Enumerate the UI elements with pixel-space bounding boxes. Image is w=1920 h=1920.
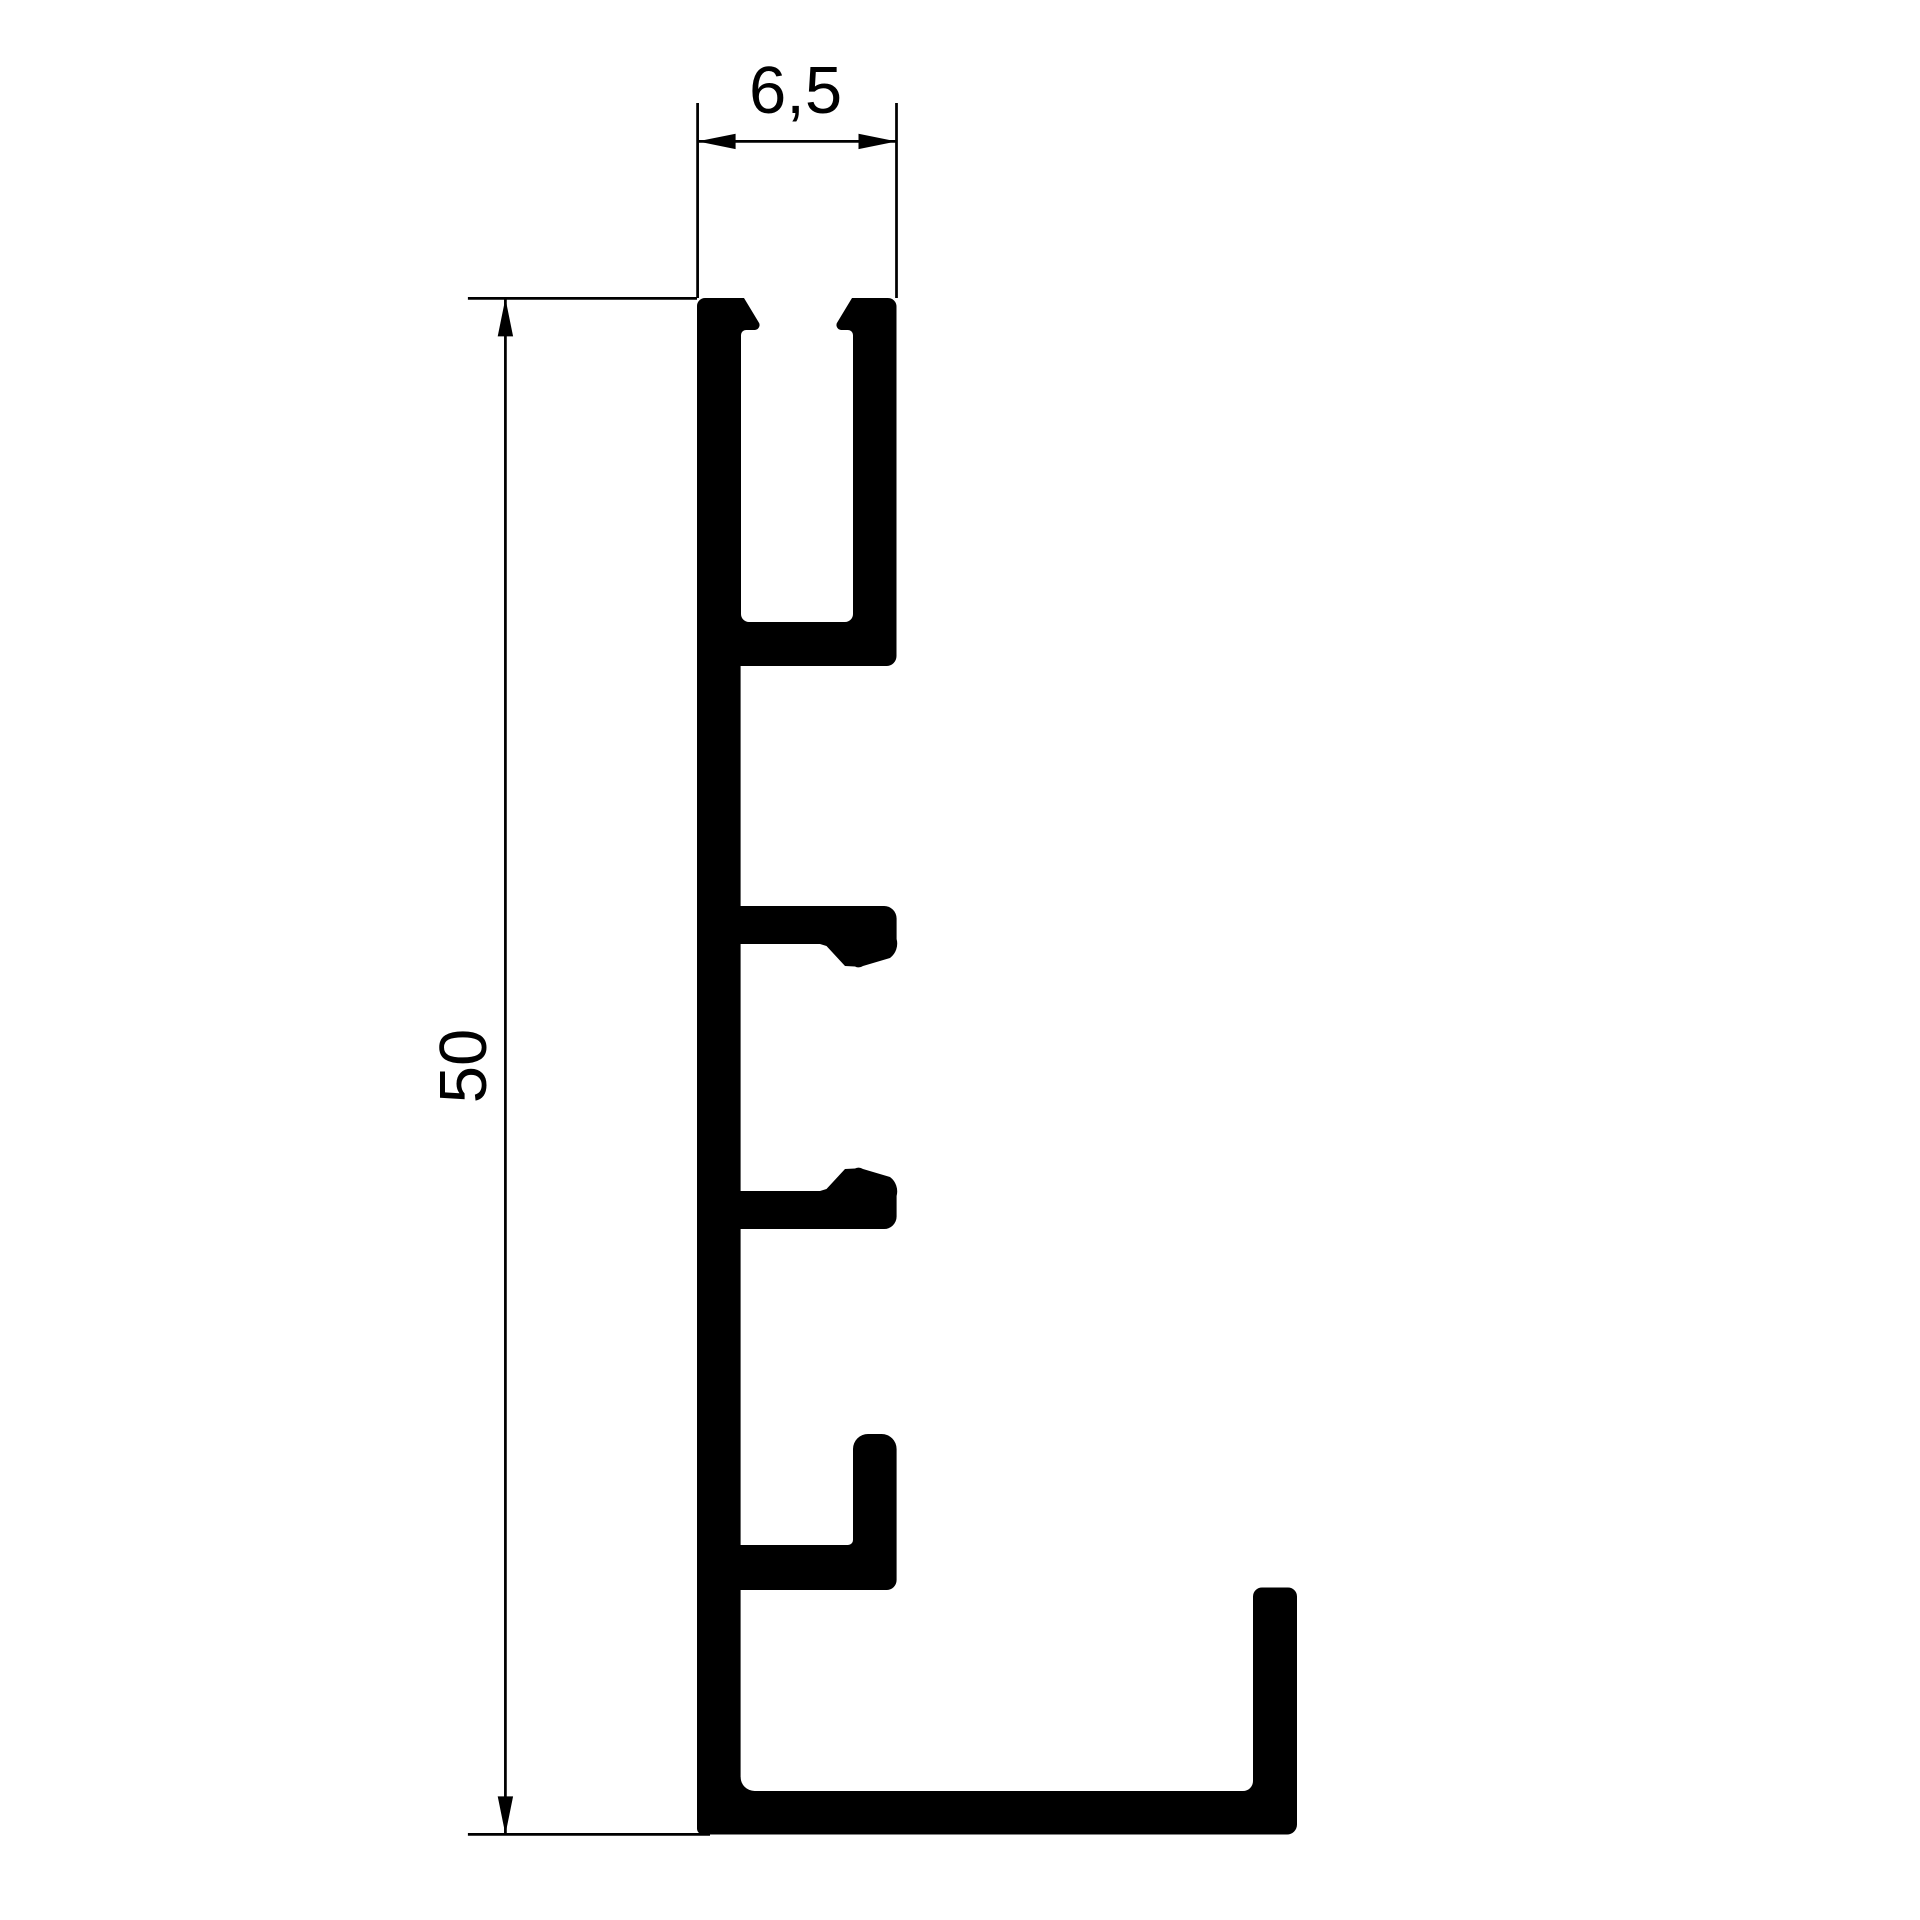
svg-text:6,5: 6,5 <box>749 53 842 128</box>
svg-text:50: 50 <box>426 1029 501 1104</box>
